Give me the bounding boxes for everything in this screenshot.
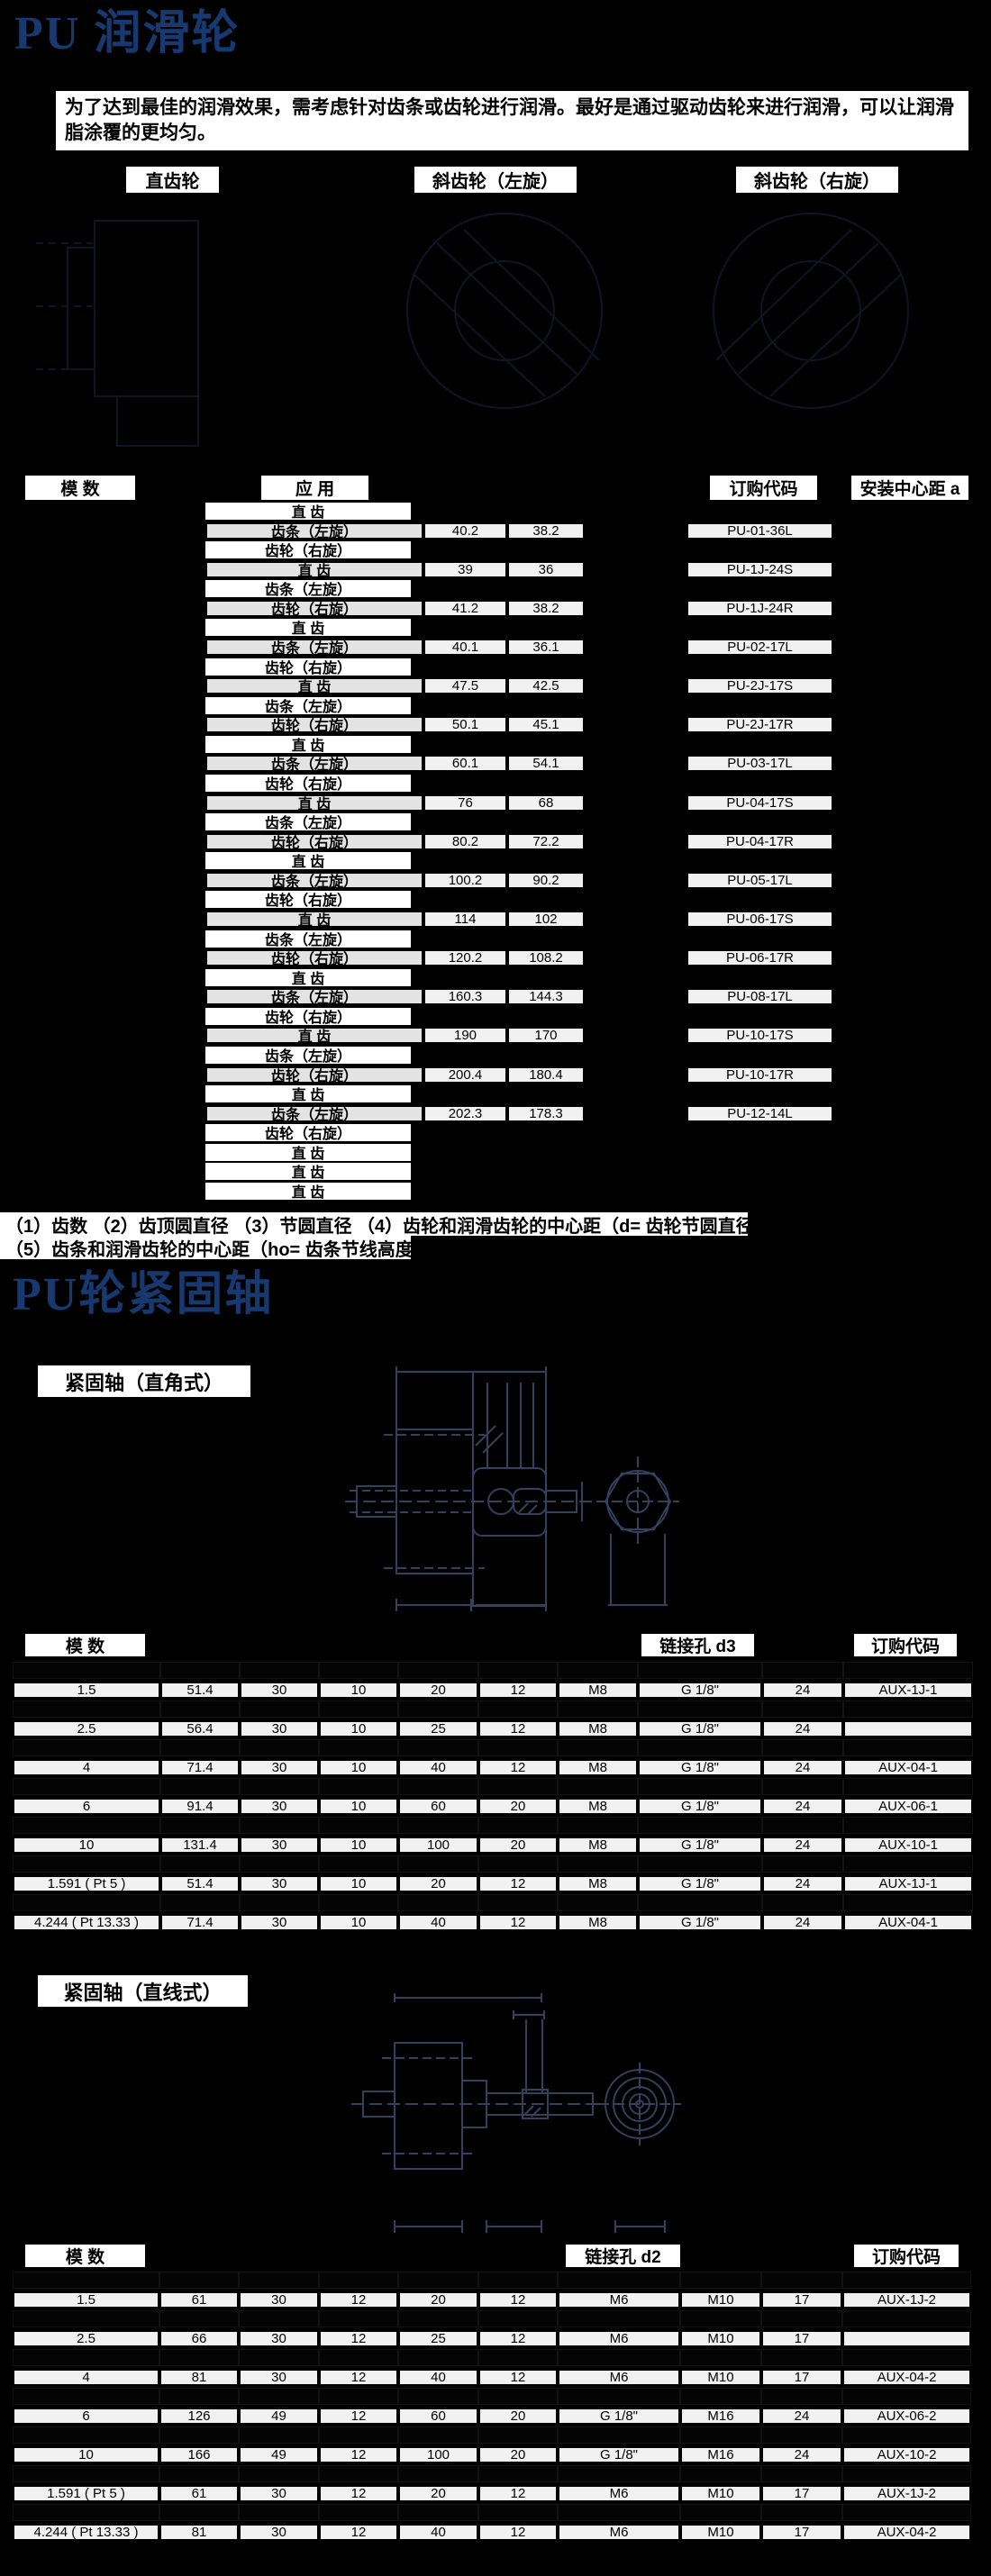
cell-col-7: M16 xyxy=(680,2446,761,2463)
cell-col-1: 81 xyxy=(159,2524,239,2541)
cell-order-code: PU-01-36L xyxy=(686,522,833,540)
cell-col-4 xyxy=(398,1778,478,1795)
cell-col-7 xyxy=(680,2465,761,2482)
cell-col-5 xyxy=(478,2426,558,2444)
cell-col-2: 30 xyxy=(240,1914,319,1931)
cell-col-9 xyxy=(842,2426,971,2444)
cell-col-8: 17 xyxy=(761,2330,842,2347)
cell-col-4: 20 xyxy=(398,1682,478,1699)
cell-col-3 xyxy=(319,1739,398,1756)
cell-col-5: 12 xyxy=(478,2369,558,2386)
cell-col-6 xyxy=(558,2465,680,2482)
cell-col-0: 4 xyxy=(13,1759,160,1776)
technical-drawing-straight xyxy=(341,1991,701,2243)
cell-col-0: 6 xyxy=(13,2408,159,2425)
cell-col-6 xyxy=(558,2388,680,2405)
cell-col-6 xyxy=(558,2349,680,2366)
cell-col-4 xyxy=(398,2504,478,2521)
cell-application: 齿轮（右旋） xyxy=(205,775,411,792)
cell-col-2 xyxy=(239,2504,319,2521)
cell-application: 直 齿 xyxy=(205,619,411,636)
cell-application: 齿轮（右旋） xyxy=(205,541,411,558)
cell-col-0 xyxy=(13,1817,160,1834)
cell-col-4: 20 xyxy=(398,1875,478,1892)
catalog-page: PU 润滑轮 为了达到最佳的润滑效果，需考虑针对齿条或齿轮进行润滑。最好是通过驱… xyxy=(0,0,991,2576)
cell-col-5: 12 xyxy=(478,2291,558,2308)
cell-tip-diameter: 80.2 xyxy=(423,833,507,850)
cell-col-6 xyxy=(558,2272,680,2289)
cell-col-9: AUX-1J-1 xyxy=(843,1875,973,1892)
cell-col-0: 4.244 ( Pt 13.33 ) xyxy=(13,2524,159,2541)
cell-col-1 xyxy=(160,1662,240,1679)
cell-col-9 xyxy=(843,1855,973,1873)
cell-col-3 xyxy=(319,2465,398,2482)
cell-application: 直 齿 xyxy=(205,911,423,928)
cell-col-0 xyxy=(13,2310,159,2327)
cell-col-7: M10 xyxy=(680,2330,761,2347)
cell-col-7: M10 xyxy=(680,2485,761,2502)
cell-col-3: 12 xyxy=(319,2446,398,2463)
cell-col-9 xyxy=(842,2388,971,2405)
cell-col-1: 51.4 xyxy=(160,1875,240,1892)
cell-col-8 xyxy=(761,2388,842,2405)
cell-col-3 xyxy=(319,2349,398,2366)
cell-col-7 xyxy=(680,2504,761,2521)
cell-col-4: 60 xyxy=(398,2408,478,2425)
cell-col-1: 51.4 xyxy=(160,1682,240,1699)
cell-col-2 xyxy=(240,1817,319,1834)
cell-col-2 xyxy=(239,2388,319,2405)
cell-col-4 xyxy=(398,1894,478,1911)
cell-tip-diameter: 40.1 xyxy=(423,639,507,656)
page-title: PU 润滑轮 xyxy=(14,11,240,58)
cell-pitch-diameter: 68 xyxy=(507,794,585,812)
cell-pitch-diameter: 38.2 xyxy=(507,600,585,617)
cell-col-6 xyxy=(558,1778,638,1795)
cell-application: 齿条（左旋） xyxy=(205,697,411,714)
cell-col-5: 12 xyxy=(478,2485,558,2502)
cell-col-0: 1.5 xyxy=(13,1682,160,1699)
cell-application: 齿轮（右旋） xyxy=(205,949,423,966)
cell-tip-diameter: 76 xyxy=(423,794,507,812)
cell-col-2 xyxy=(240,1739,319,1756)
cell-col-0 xyxy=(13,2465,159,2482)
cell-order-code: PU-1J-24S xyxy=(686,561,833,578)
cell-col-5: 20 xyxy=(478,2408,558,2425)
cell-col-2: 30 xyxy=(239,2291,319,2308)
cell-col-6: M8 xyxy=(558,1914,638,1931)
cell-col-4: 20 xyxy=(398,2291,478,2308)
cell-application: 直 齿 xyxy=(205,852,411,869)
cell-col-3: 12 xyxy=(319,2485,398,2502)
cell-col-4: 40 xyxy=(398,2369,478,2386)
cell-col-0 xyxy=(13,2388,159,2405)
right-angle-table-header-module: 模 数 xyxy=(25,1634,145,1656)
cell-application: 直 齿 xyxy=(205,503,411,520)
cell-col-8: 17 xyxy=(761,2291,842,2308)
cell-tip-diameter: 39 xyxy=(423,561,507,578)
cell-col-8: 17 xyxy=(761,2485,842,2502)
cell-col-7: G 1/8" xyxy=(638,1720,762,1737)
cell-pitch-diameter: 178.3 xyxy=(507,1105,585,1122)
cell-col-0 xyxy=(13,2504,159,2521)
cell-col-7 xyxy=(680,2310,761,2327)
cell-col-8: 24 xyxy=(762,1798,843,1815)
cell-col-8 xyxy=(762,1894,843,1911)
cell-col-9: AUX-10-1 xyxy=(843,1837,973,1854)
cell-col-7 xyxy=(638,1894,762,1911)
cell-order-code: PU-1J-24R xyxy=(686,600,833,617)
cell-col-5 xyxy=(478,1855,558,1873)
cell-application: 直 齿 xyxy=(205,969,411,986)
cell-col-8 xyxy=(762,1662,843,1679)
cell-col-6 xyxy=(558,1701,638,1718)
cell-col-3: 10 xyxy=(319,1759,398,1776)
cell-pitch-diameter: 144.3 xyxy=(507,988,585,1005)
straight-table-header-order-code: 订购代码 xyxy=(854,2245,959,2267)
cell-col-9 xyxy=(842,2349,971,2366)
cell-col-9 xyxy=(842,2310,971,2327)
cell-col-8: 17 xyxy=(761,2369,842,2386)
technical-drawing-right-angle xyxy=(341,1356,701,1626)
cell-col-9 xyxy=(843,1720,973,1737)
gear-ghost-images xyxy=(14,194,977,482)
cell-col-7 xyxy=(638,1662,762,1679)
cell-col-5: 12 xyxy=(478,2330,558,2347)
cell-col-4: 60 xyxy=(398,1798,478,1815)
cell-col-8: 24 xyxy=(762,1875,843,1892)
cell-col-2: 30 xyxy=(240,1798,319,1815)
cell-application: 直 齿 xyxy=(205,736,411,753)
cell-col-8: 24 xyxy=(762,1914,843,1931)
cell-col-2: 30 xyxy=(240,1682,319,1699)
cell-order-code: PU-05-17L xyxy=(686,872,833,889)
cell-col-3 xyxy=(319,1662,398,1679)
cell-col-0: 10 xyxy=(13,2446,159,2463)
cell-col-7: G 1/8" xyxy=(638,1798,762,1815)
cell-pitch-diameter: 42.5 xyxy=(507,677,585,694)
cell-col-4 xyxy=(398,2310,478,2327)
cell-col-2: 30 xyxy=(240,1837,319,1854)
cell-pitch-diameter: 54.1 xyxy=(507,755,585,772)
cell-application: 直 齿 xyxy=(205,794,423,812)
cell-col-2: 30 xyxy=(239,2485,319,2502)
cell-col-0 xyxy=(13,2272,159,2289)
cell-col-1: 61 xyxy=(159,2291,239,2308)
cell-col-5 xyxy=(478,2272,558,2289)
cell-col-5 xyxy=(478,2504,558,2521)
cell-col-1: 81 xyxy=(159,2369,239,2386)
cell-col-7 xyxy=(680,2388,761,2405)
cell-col-1: 71.4 xyxy=(160,1914,240,1931)
lubrication-table-header-center-distance: 安装中心距 a xyxy=(851,476,968,500)
cell-col-4: 100 xyxy=(398,1837,478,1854)
cell-col-0: 4.244 ( Pt 13.33 ) xyxy=(13,1914,160,1931)
cell-col-4 xyxy=(398,2349,478,2366)
cell-col-2: 30 xyxy=(239,2369,319,2386)
cell-col-8 xyxy=(761,2465,842,2482)
cell-col-0: 2.5 xyxy=(13,1720,160,1737)
cell-application: 直 齿 xyxy=(205,1027,423,1044)
cell-col-2 xyxy=(240,1778,319,1795)
cell-order-code: PU-2J-17S xyxy=(686,677,833,694)
cell-col-1 xyxy=(160,1739,240,1756)
cell-col-9: AUX-04-1 xyxy=(843,1759,973,1776)
cell-application: 齿轮（右旋） xyxy=(205,658,411,676)
cell-col-4: 25 xyxy=(398,1720,478,1737)
cell-col-7 xyxy=(638,1739,762,1756)
cell-col-1: 61 xyxy=(159,2485,239,2502)
cell-col-1: 66 xyxy=(159,2330,239,2347)
cell-application: 直 齿 xyxy=(205,1085,411,1102)
cell-col-7: G 1/8" xyxy=(638,1875,762,1892)
cell-col-7: G 1/8" xyxy=(638,1759,762,1776)
cell-col-6: G 1/8" xyxy=(558,2408,680,2425)
cell-col-8 xyxy=(761,2272,842,2289)
cell-application: 齿条（左旋） xyxy=(205,813,411,830)
cell-application: 齿轮（右旋） xyxy=(205,891,411,908)
cell-col-8 xyxy=(762,1701,843,1718)
cell-col-0: 4 xyxy=(13,2369,159,2386)
cell-col-9 xyxy=(842,2465,971,2482)
cell-col-9 xyxy=(843,1739,973,1756)
cell-application: 齿条（左旋） xyxy=(205,639,423,656)
cell-order-code: PU-02-17L xyxy=(686,639,833,656)
cell-col-1 xyxy=(159,2388,239,2405)
cell-application: 齿轮（右旋） xyxy=(205,1008,411,1025)
cell-col-9 xyxy=(842,2504,971,2521)
cell-application: 齿条（左旋） xyxy=(205,522,423,540)
cell-tip-diameter: 41.2 xyxy=(423,600,507,617)
cell-col-2: 30 xyxy=(240,1720,319,1737)
cell-col-1 xyxy=(159,2426,239,2444)
lubrication-table-header-application: 应 用 xyxy=(261,476,368,500)
cell-col-8 xyxy=(761,2504,842,2521)
cell-col-6: M6 xyxy=(558,2291,680,2308)
cell-col-6: G 1/8" xyxy=(558,2446,680,2463)
cell-col-5: 20 xyxy=(478,1837,558,1854)
cell-col-4 xyxy=(398,2272,478,2289)
cell-col-4 xyxy=(398,2465,478,2482)
cell-col-8: 17 xyxy=(761,2524,842,2541)
cell-col-4 xyxy=(398,2426,478,2444)
cell-col-6 xyxy=(558,1855,638,1873)
cell-col-9: AUX-04-2 xyxy=(842,2524,971,2541)
cell-application: 齿轮（右旋） xyxy=(205,600,423,617)
cell-tip-diameter: 190 xyxy=(423,1027,507,1044)
cell-col-8 xyxy=(761,2426,842,2444)
cell-col-2: 30 xyxy=(240,1875,319,1892)
cell-col-6: M6 xyxy=(558,2524,680,2541)
cell-application: 齿条（左旋） xyxy=(205,1105,423,1122)
cell-col-0 xyxy=(13,1662,160,1679)
cell-col-7: M10 xyxy=(680,2524,761,2541)
straight-table-header-module: 模 数 xyxy=(25,2245,145,2267)
cell-col-6 xyxy=(558,1739,638,1756)
cell-col-1: 166 xyxy=(159,2446,239,2463)
cell-col-3: 12 xyxy=(319,2291,398,2308)
cell-col-3 xyxy=(319,1894,398,1911)
cell-col-2: 30 xyxy=(239,2524,319,2541)
cell-pitch-diameter: 108.2 xyxy=(507,949,585,966)
cell-order-code: PU-03-17L xyxy=(686,755,833,772)
cell-col-6 xyxy=(558,2310,680,2327)
cell-col-8 xyxy=(762,1778,843,1795)
cell-order-code: PU-2J-17R xyxy=(686,716,833,733)
cell-col-6: M6 xyxy=(558,2330,680,2347)
footnote-1: （1）齿数 （2）齿顶圆直径 （3）节圆直径 （4）齿轮和润滑齿轮的中心距（d=… xyxy=(0,1212,748,1236)
cell-order-code: PU-04-17S xyxy=(686,794,833,812)
cell-col-9 xyxy=(843,1662,973,1679)
cell-tip-diameter: 160.3 xyxy=(423,988,507,1005)
cell-pitch-diameter: 170 xyxy=(507,1027,585,1044)
cell-col-5: 12 xyxy=(478,1914,558,1931)
cell-application: 齿条（左旋） xyxy=(205,1047,411,1064)
cell-col-9: AUX-04-1 xyxy=(843,1914,973,1931)
cell-pitch-diameter: 38.2 xyxy=(507,522,585,540)
cell-tip-diameter: 202.3 xyxy=(423,1105,507,1122)
section2-title: PU轮紧固轴 xyxy=(13,1272,273,1319)
cell-col-1: 56.4 xyxy=(160,1720,240,1737)
cell-col-3: 12 xyxy=(319,2369,398,2386)
cell-col-0 xyxy=(13,1701,160,1718)
cell-col-2 xyxy=(240,1855,319,1873)
cell-application: 齿条（左旋） xyxy=(205,580,411,597)
cell-col-4: 40 xyxy=(398,1914,478,1931)
cell-col-2 xyxy=(240,1662,319,1679)
cell-col-1 xyxy=(159,2272,239,2289)
cell-tip-diameter: 60.1 xyxy=(423,755,507,772)
cell-application: 直 齿 xyxy=(205,1144,411,1161)
cell-col-3: 10 xyxy=(319,1837,398,1854)
cell-col-7 xyxy=(638,1778,762,1795)
lubrication-table-header-module: 模 数 xyxy=(25,476,135,500)
cell-col-1 xyxy=(159,2504,239,2521)
cell-tip-diameter: 40.2 xyxy=(423,522,507,540)
cell-order-code: PU-10-17S xyxy=(686,1027,833,1044)
cell-col-0: 1.5 xyxy=(13,2291,159,2308)
cell-col-4 xyxy=(398,2388,478,2405)
cell-col-5: 12 xyxy=(478,1682,558,1699)
cell-col-4: 25 xyxy=(398,2330,478,2347)
cell-col-9: AUX-10-2 xyxy=(842,2446,971,2463)
cell-col-9 xyxy=(842,2272,971,2289)
cell-col-8: 24 xyxy=(762,1720,843,1737)
cell-col-3 xyxy=(319,1701,398,1718)
cell-col-3: 12 xyxy=(319,2408,398,2425)
cell-col-7: G 1/8" xyxy=(638,1914,762,1931)
cell-col-0: 1.591 ( Pt 5 ) xyxy=(13,1875,160,1892)
label-right-angle-shaft: 紧固轴（直角式） xyxy=(38,1365,250,1397)
cell-col-6: M8 xyxy=(558,1759,638,1776)
cell-col-1: 91.4 xyxy=(160,1798,240,1815)
cell-pitch-diameter: 180.4 xyxy=(507,1066,585,1084)
cell-col-5 xyxy=(478,1778,558,1795)
cell-col-9: AUX-04-2 xyxy=(842,2369,971,2386)
cell-col-5: 12 xyxy=(478,1720,558,1737)
cell-application: 齿条（左旋） xyxy=(205,755,423,772)
cell-order-code: PU-06-17R xyxy=(686,949,833,966)
cell-col-4: 40 xyxy=(398,2524,478,2541)
cell-col-5 xyxy=(478,1739,558,1756)
cell-col-7: M10 xyxy=(680,2369,761,2386)
cell-col-5 xyxy=(478,1701,558,1718)
cell-col-6 xyxy=(558,1894,638,1911)
cell-col-2: 30 xyxy=(240,1759,319,1776)
cell-col-1 xyxy=(160,1894,240,1911)
cell-order-code: PU-06-17S xyxy=(686,911,833,928)
footnote-2: （5）齿条和润滑齿轮的中心距（ho= 齿条节线高度） xyxy=(0,1236,411,1259)
cell-col-5 xyxy=(478,2310,558,2327)
cell-col-0: 2.5 xyxy=(13,2330,159,2347)
label-helical-gear-left: 斜齿轮（左旋） xyxy=(414,167,577,193)
cell-col-4 xyxy=(398,1701,478,1718)
cell-col-0: 6 xyxy=(13,1798,160,1815)
cell-col-0 xyxy=(13,1739,160,1756)
label-straight-shaft: 紧固轴（直线式） xyxy=(38,1975,248,2007)
cell-application: 齿条（左旋） xyxy=(205,872,423,889)
cell-col-3 xyxy=(319,1855,398,1873)
cell-col-6: M8 xyxy=(558,1875,638,1892)
cell-col-0 xyxy=(13,1778,160,1795)
cell-col-5 xyxy=(478,1662,558,1679)
cell-col-5 xyxy=(478,2388,558,2405)
cell-col-7 xyxy=(638,1855,762,1873)
cell-col-3 xyxy=(319,2426,398,2444)
cell-application: 直 齿 xyxy=(205,1163,411,1180)
cell-col-3 xyxy=(319,2272,398,2289)
cell-tip-diameter: 200.4 xyxy=(423,1066,507,1084)
cell-pitch-diameter: 72.2 xyxy=(507,833,585,850)
cell-col-4 xyxy=(398,1817,478,1834)
cell-col-6: M8 xyxy=(558,1837,638,1854)
cell-application: 直 齿 xyxy=(205,561,423,578)
cell-col-5: 20 xyxy=(478,1798,558,1815)
cell-order-code: PU-10-17R xyxy=(686,1066,833,1084)
cell-col-8: 24 xyxy=(762,1837,843,1854)
cell-col-5: 12 xyxy=(478,2524,558,2541)
cell-col-8 xyxy=(762,1739,843,1756)
cell-col-9 xyxy=(843,1817,973,1834)
cell-col-3 xyxy=(319,1778,398,1795)
cell-col-1 xyxy=(159,2349,239,2366)
cell-application: 齿条（左旋） xyxy=(205,988,423,1005)
cell-col-2: 49 xyxy=(239,2408,319,2425)
cell-col-0 xyxy=(13,2426,159,2444)
cell-tip-diameter: 47.5 xyxy=(423,677,507,694)
cell-col-6: M8 xyxy=(558,1720,638,1737)
cell-col-8 xyxy=(762,1817,843,1834)
cell-col-0 xyxy=(13,2349,159,2366)
cell-col-2: 30 xyxy=(239,2330,319,2347)
cell-col-6 xyxy=(558,1662,638,1679)
cell-col-5 xyxy=(478,2465,558,2482)
cell-col-0 xyxy=(13,1894,160,1911)
label-spur-gear: 直齿轮 xyxy=(126,167,219,193)
cell-pitch-diameter: 102 xyxy=(507,911,585,928)
cell-col-2 xyxy=(239,2272,319,2289)
cell-col-2 xyxy=(239,2310,319,2327)
cell-col-8: 24 xyxy=(761,2446,842,2463)
cell-col-2: 49 xyxy=(239,2446,319,2463)
cell-pitch-diameter: 90.2 xyxy=(507,872,585,889)
cell-col-5 xyxy=(478,1817,558,1834)
cell-col-0 xyxy=(13,1855,160,1873)
right-angle-table-header-link-hole: 链接孔 d3 xyxy=(641,1634,754,1656)
cell-col-1 xyxy=(159,2310,239,2327)
cell-col-2 xyxy=(239,2426,319,2444)
cell-col-7 xyxy=(680,2426,761,2444)
